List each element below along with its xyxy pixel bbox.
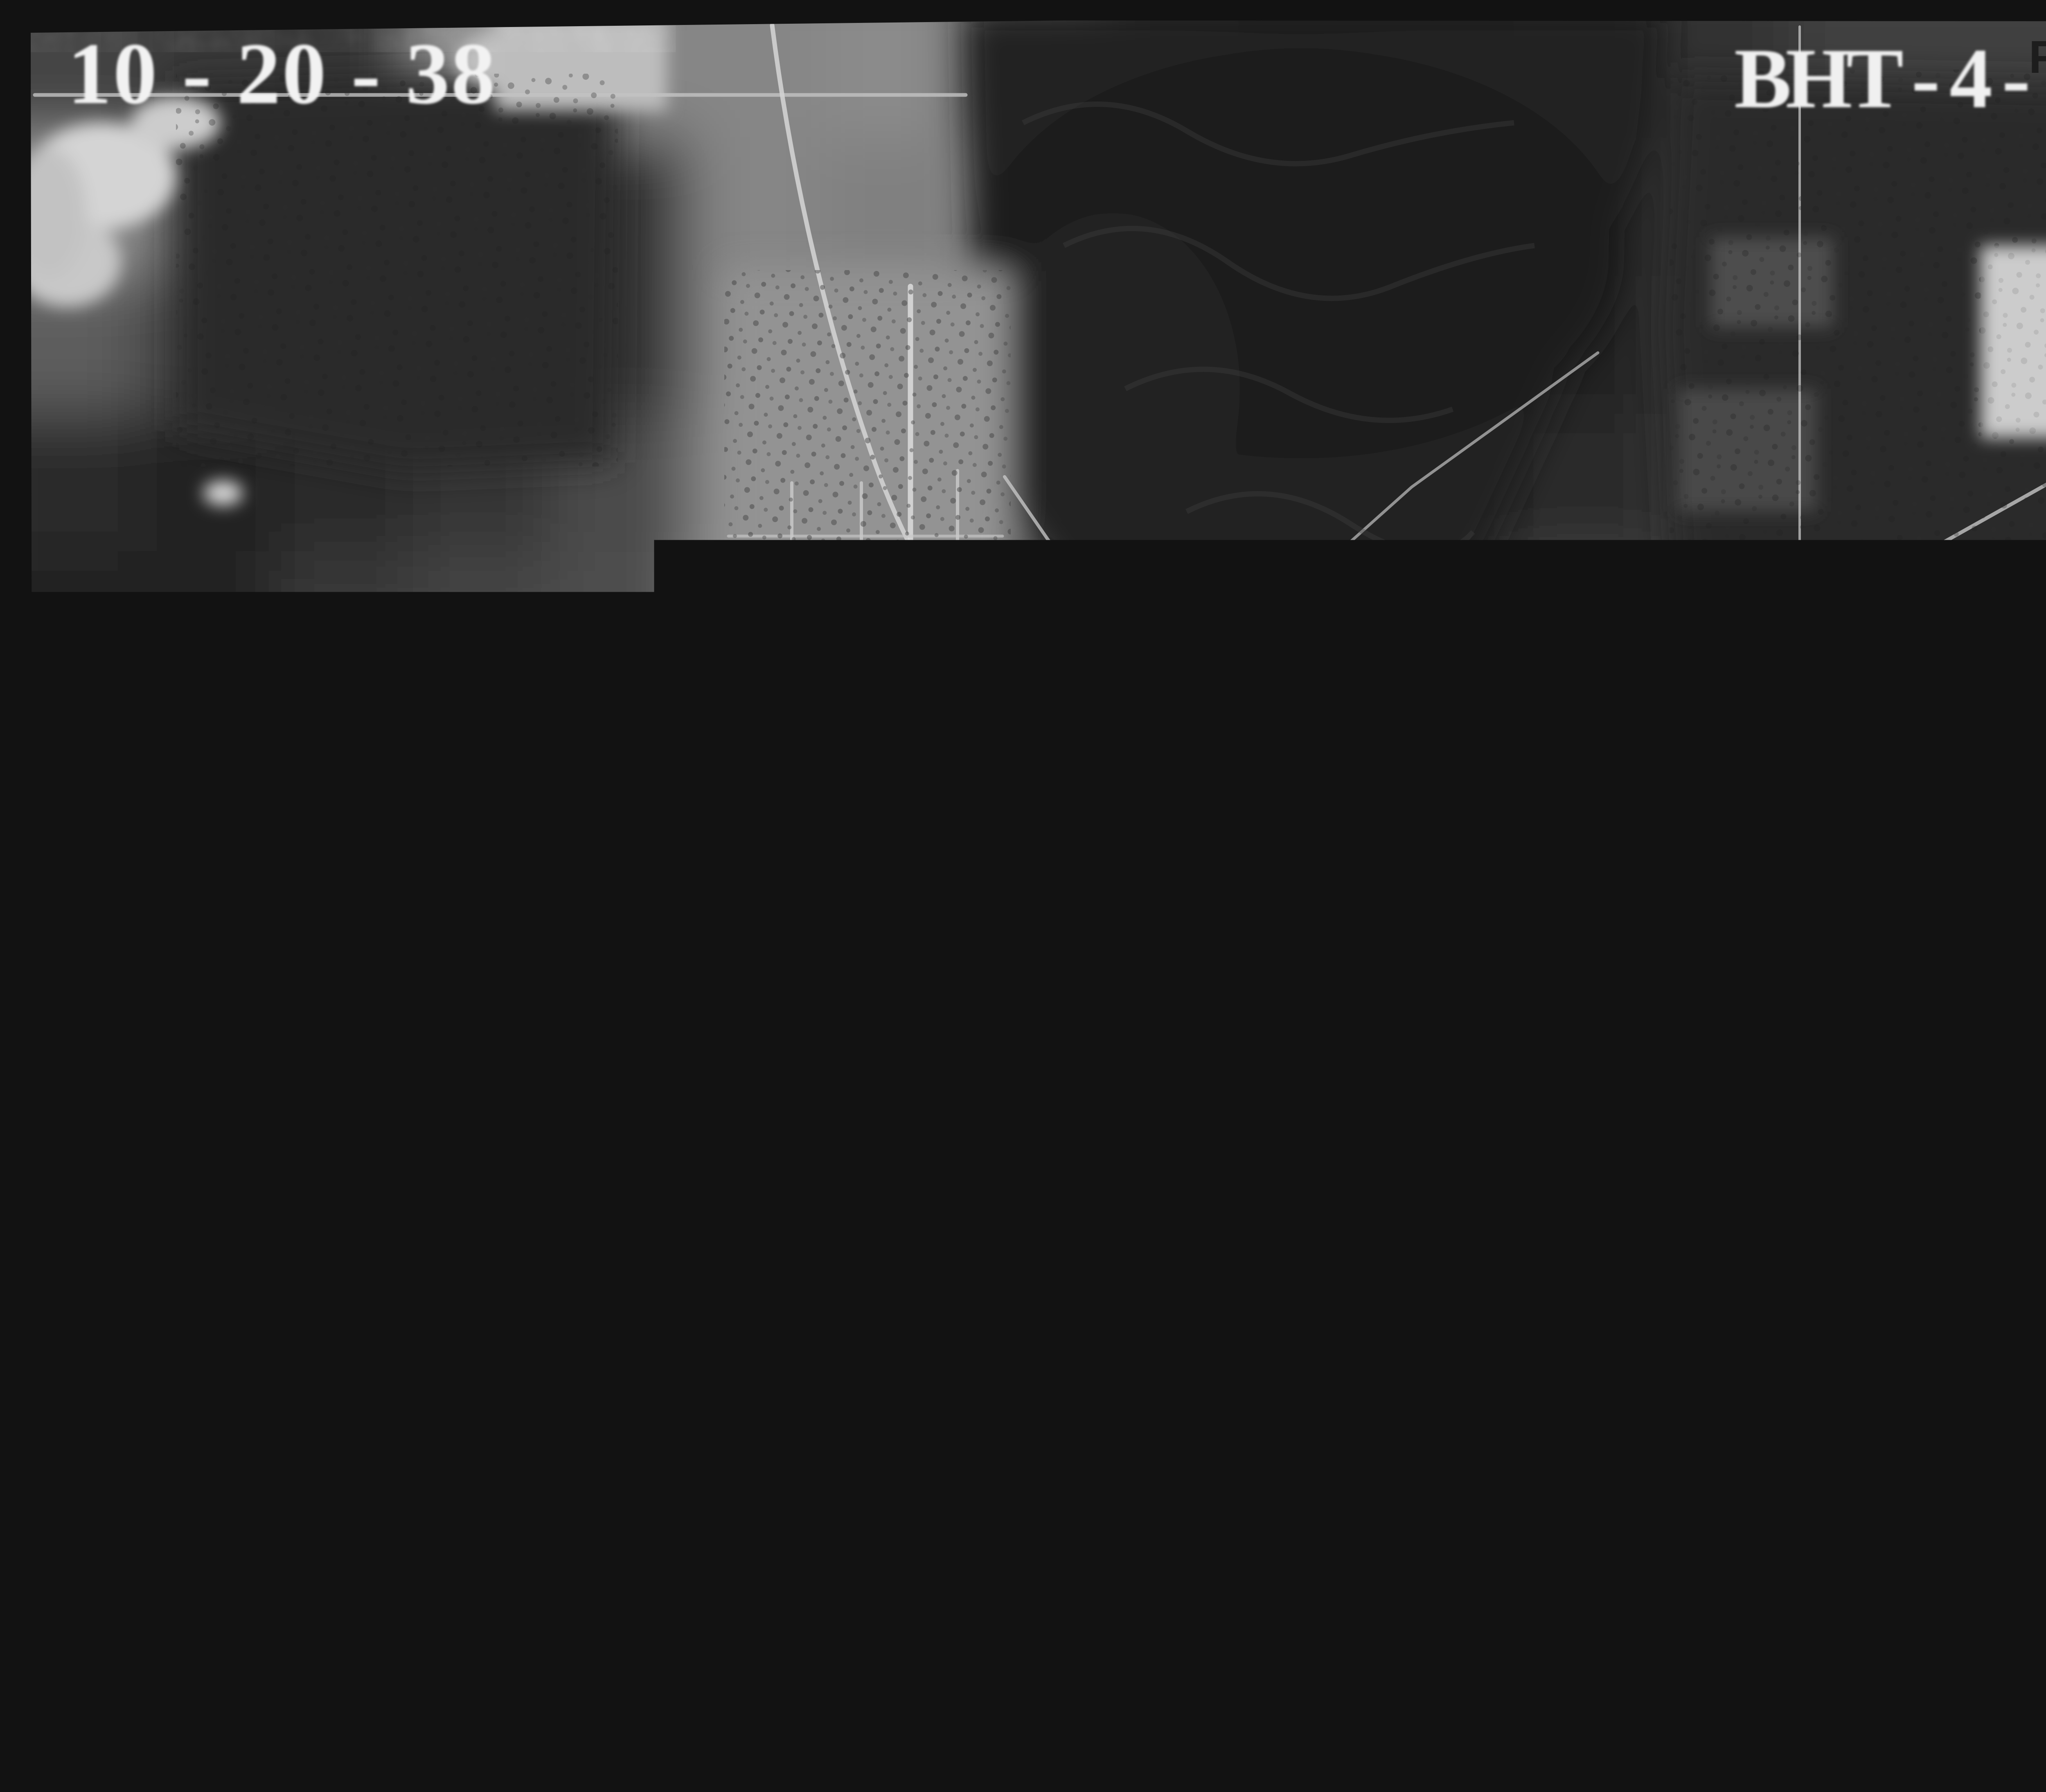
svg-text:FL. -7.: FL. -7. <box>2029 32 2046 83</box>
svg-text:BHT - 4 -: BHT - 4 - <box>1734 31 2030 126</box>
